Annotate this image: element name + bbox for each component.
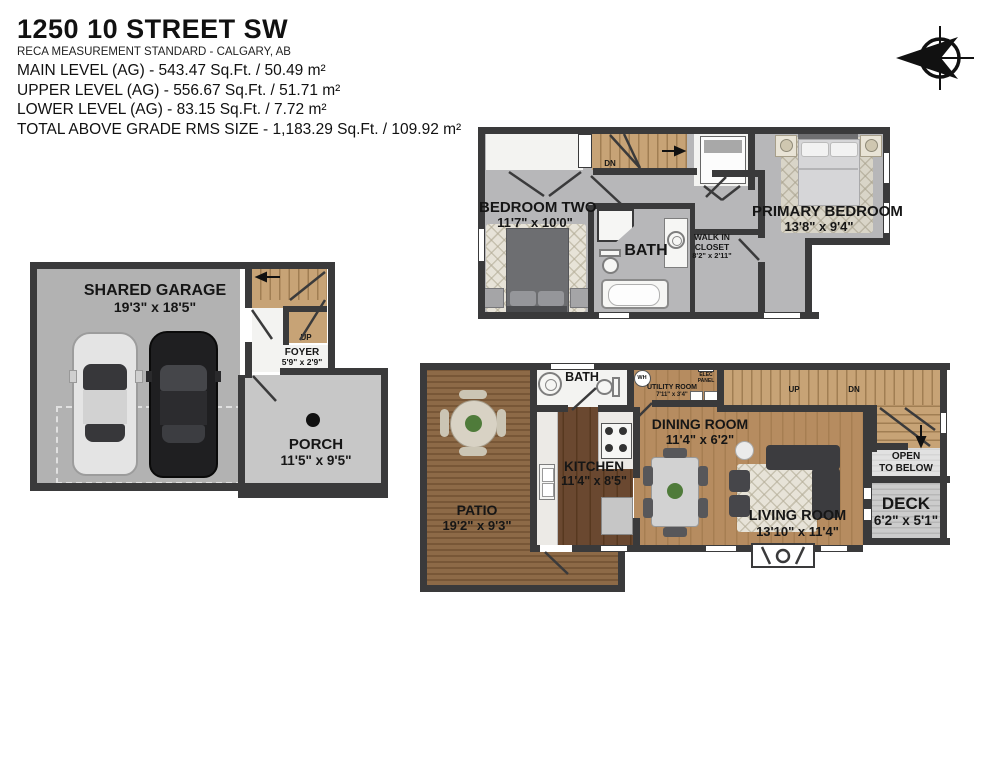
burner <box>605 444 613 452</box>
patio-chair <box>440 409 449 437</box>
car-mirror <box>135 370 143 383</box>
plant-icon <box>667 483 683 499</box>
stairs-up-label: UP <box>294 333 318 342</box>
shared-garage-label: SHARED GARAGE 19'3" x 18'5" <box>72 282 238 316</box>
pillow <box>830 142 858 157</box>
washer-dryer-top <box>704 140 742 153</box>
wall-segment <box>283 306 289 345</box>
room-dims: 11'5" x 9'5" <box>266 453 366 468</box>
bedroom-two-label: BEDROOM TWO 11'7" x 10'0" <box>479 199 591 231</box>
room-name: BEDROOM TWO <box>479 199 591 216</box>
stair-landing <box>252 308 285 345</box>
open-to-below-label: OPEN TO BELOW <box>874 451 938 474</box>
measurement-standard: RECA MEASUREMENT STANDARD - CALGARY, AB <box>17 46 461 58</box>
plant-icon <box>465 415 482 432</box>
wall-segment <box>712 170 758 177</box>
wall-segment <box>593 203 695 209</box>
wh-label: WH <box>635 375 649 381</box>
room-name: PORCH <box>266 436 366 453</box>
deck-label: DECK 6'2" x 5'1" <box>872 494 940 529</box>
wall-segment <box>758 262 765 312</box>
patio-chair <box>459 390 487 399</box>
label-line: TO BELOW <box>874 463 938 475</box>
burner <box>619 427 627 435</box>
nightstand <box>570 288 590 308</box>
wall-segment <box>593 168 697 175</box>
window <box>550 363 595 370</box>
car-rear-window <box>85 424 125 442</box>
room-dims: 6'2" x 5'1" <box>872 513 940 528</box>
wall-segment <box>478 127 890 134</box>
wall-segment <box>640 545 705 552</box>
room-name: BATH <box>616 242 676 260</box>
bedroom-two-closet <box>486 134 583 170</box>
wall-segment <box>863 476 950 483</box>
window <box>883 152 890 184</box>
blanket-fold <box>798 168 858 170</box>
floor-plan-page: 1250 10 STREET SW RECA MEASUREMENT STAND… <box>0 0 993 768</box>
lower-level-area: LOWER LEVEL (AG) - 83.15 Sq.Ft. / 7.72 m… <box>17 100 461 120</box>
wall-segment <box>618 552 625 592</box>
room-name: UTILITY ROOM <box>640 384 704 392</box>
wall-segment <box>940 363 947 545</box>
wall-segment <box>537 405 568 412</box>
room-dims: 19'3" x 18'5" <box>72 300 238 316</box>
window <box>940 412 947 434</box>
room-dims: 11'4" x 6'2" <box>650 433 750 448</box>
window <box>705 545 737 552</box>
stairs-up-treads <box>252 268 327 300</box>
lamp-icon <box>780 139 793 152</box>
wall-segment <box>572 545 600 552</box>
patio-chair <box>497 409 506 437</box>
utility-room-label: UTILITY ROOM 7'11" x 3'4" <box>640 384 704 399</box>
burner <box>605 427 613 435</box>
wall-segment <box>245 262 252 308</box>
room-name: DECK <box>872 494 940 513</box>
main-stairs-turn <box>877 405 940 448</box>
dining-room-label: DINING ROOM 11'4" x 6'2" <box>650 417 750 448</box>
living-room-label: LIVING ROOM 13'10" x 11'4" <box>745 508 850 539</box>
wall-segment <box>381 371 388 491</box>
wall-segment <box>530 363 537 552</box>
porch-label: PORCH 11'5" x 9'5" <box>266 436 366 468</box>
room-name: KITCHEN <box>552 459 636 474</box>
upper-bath-label: BATH <box>616 242 676 260</box>
room-dims: 19'2" x 9'3" <box>432 519 522 534</box>
primary-bedroom-label: PRIMARY BEDROOM 13'8" x 9'4" <box>752 203 886 235</box>
wall-segment <box>628 545 640 552</box>
stairs-dn-label: DN <box>598 159 622 168</box>
upper-level-area: UPPER LEVEL (AG) - 556.67 Sq.Ft. / 51.71… <box>17 81 461 101</box>
wall-segment <box>238 375 245 491</box>
wall-segment <box>652 400 724 407</box>
car-white <box>72 332 138 476</box>
wall-segment <box>633 518 640 545</box>
wall-segment <box>420 363 427 592</box>
wall-segment <box>848 545 863 552</box>
toilet-tank <box>612 377 620 397</box>
header: 1250 10 STREET SW RECA MEASUREMENT STAND… <box>17 14 461 139</box>
room-dims: 13'10" x 11'4" <box>745 525 850 540</box>
porch-light-icon <box>306 413 320 427</box>
wall-segment <box>30 483 245 491</box>
patio-floor <box>530 552 618 585</box>
window <box>863 508 872 521</box>
dining-chair <box>643 498 653 518</box>
window <box>820 545 848 552</box>
patio-label: PATIO 19'2" x 9'3" <box>432 503 522 534</box>
kitchen-label: KITCHEN 11'4" x 8'5" <box>552 459 636 489</box>
window <box>600 545 628 552</box>
pillow <box>538 291 564 306</box>
car-black <box>149 331 218 478</box>
room-name: PATIO <box>432 503 522 519</box>
wall-segment <box>238 483 388 498</box>
patio-chair <box>459 447 487 456</box>
stairs-dn-label: DN <box>843 385 865 394</box>
pillow <box>801 142 829 157</box>
room-name: SHARED GARAGE <box>72 282 238 300</box>
room-name: DINING ROOM <box>650 417 750 433</box>
car-windshield <box>83 364 127 390</box>
armchair <box>729 470 750 492</box>
dining-chair <box>698 466 708 486</box>
wall-segment <box>420 363 950 370</box>
page-title: 1250 10 STREET SW <box>17 14 461 45</box>
wall-segment <box>530 545 540 552</box>
room-dims: 11'4" x 8'5" <box>552 474 636 488</box>
compass-north-icon <box>890 24 982 94</box>
room-dims: 7'11" x 3'4" <box>640 392 704 399</box>
room-dims: 11'7" x 10'0" <box>479 216 591 231</box>
wall-segment <box>627 400 634 407</box>
room-dims: 13'8" x 9'4" <box>752 220 886 235</box>
window <box>478 228 485 262</box>
main-stairs <box>724 370 940 405</box>
wall-segment <box>748 131 755 190</box>
wall-segment <box>863 538 950 545</box>
room-dims: 5'9" x 2'9" <box>268 358 336 368</box>
wall-segment <box>805 238 890 245</box>
pillow <box>510 291 536 306</box>
wall-segment <box>420 585 625 592</box>
wall-segment <box>737 545 753 552</box>
wall-segment <box>280 368 388 375</box>
main-level-area: MAIN LEVEL (AG) - 543.47 Sq.Ft. / 50.49 … <box>17 61 461 81</box>
wall-segment <box>245 368 250 375</box>
wall-segment <box>805 238 812 319</box>
walk-in-closet-label: WALK IN CLOSET 8'2" x 2'11" <box>684 233 740 261</box>
dining-chair <box>643 466 653 486</box>
wall-segment <box>283 306 327 312</box>
car-roof <box>160 391 207 425</box>
dining-chair <box>663 527 687 537</box>
stairs-up-label: UP <box>783 385 805 394</box>
burner <box>619 444 627 452</box>
label-line: OPEN <box>874 451 938 463</box>
fridge-icon <box>601 497 633 535</box>
total-area: TOTAL ABOVE GRADE RMS SIZE - 1,183.29 Sq… <box>17 120 461 140</box>
car-windshield <box>160 365 207 391</box>
wall-segment <box>870 443 908 450</box>
dining-chair <box>698 498 708 518</box>
wall-segment <box>717 405 877 412</box>
window <box>863 487 872 500</box>
car-roof <box>83 390 127 424</box>
room-dims: 8'2" x 2'11" <box>684 252 740 261</box>
room-name: LIVING ROOM <box>745 508 850 525</box>
nightstand <box>484 288 504 308</box>
lamp-icon <box>865 139 878 152</box>
elec-panel-label: ELEC PANEL <box>694 373 718 384</box>
bathtub-inner <box>608 284 660 306</box>
main-bath-label: BATH <box>556 370 608 384</box>
car-mirror <box>69 370 77 383</box>
sofa-sectional <box>766 445 840 470</box>
car-mirror <box>146 371 152 382</box>
fireplace-icon <box>751 543 815 568</box>
window <box>763 312 801 319</box>
foyer-label: FOYER 5'9" x 2'9" <box>268 347 336 368</box>
closet-door <box>578 134 592 168</box>
car-mirror <box>215 371 221 382</box>
wall-segment <box>30 262 37 490</box>
car-rear-window <box>162 425 205 443</box>
dining-chair <box>663 448 687 458</box>
room-name: PRIMARY BEDROOM <box>752 203 886 220</box>
wall-segment <box>30 262 335 269</box>
window <box>598 312 630 319</box>
